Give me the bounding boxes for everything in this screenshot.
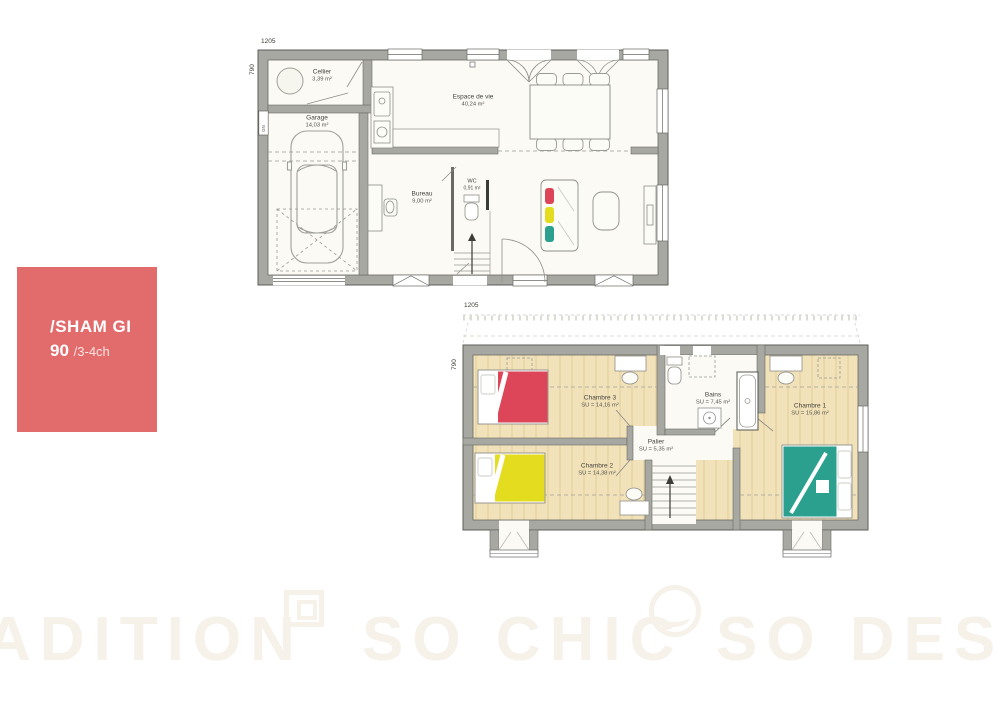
circle-logo-icon [649,585,701,637]
model-number: 90 [50,341,69,360]
room-label-bureau: Bureau 9,00 m² [412,190,433,205]
shower [737,372,758,430]
room-label-garage: Garage 14,03 m² [306,114,329,129]
square-logo-icon [284,590,324,627]
model-variant: /3-4ch [74,344,110,359]
upper-height-dimension: 790 [451,359,458,370]
washbasin [698,408,721,428]
room-label-chambre2: Chambre 2 SU = 14,38 m² [578,462,616,477]
sofa [541,180,578,251]
model-title: /SHAM GI [50,317,131,337]
ground-width-dimension: 1205 [261,38,275,45]
circle-logo-inner [658,606,690,627]
watermark-text-center: SO CHIC [362,604,683,675]
roof-outline [463,315,860,343]
bed-yellow [475,453,545,503]
upper-width-dimension: 1205 [464,302,478,309]
ground-floor-plan: 1205 790 GN Cellier 3,39 m² Garage 14,03… [245,35,675,291]
room-label-palier: Palier SU = 5,35 m² [639,438,673,453]
room-label-chambre1: Chambre 1 SU = 15,86 m² [791,402,829,417]
bed-red [478,370,548,424]
dining-table [530,74,610,151]
model-number-line: 90 /3-4ch [50,341,110,361]
toilet [667,357,682,384]
toilet [464,195,479,220]
room-label-wc: WC 0,91 m² [464,178,481,191]
coffee-table [593,192,619,230]
watermark-text-right: SO DESI [716,604,1000,675]
upper-floor-drawing [446,298,874,570]
room-label-cellier: Cellier 3,39 m² [312,68,332,83]
ground-floor-drawing [245,35,675,291]
plan-sheet: ADITION SO CHIC SO DESI /SHAM GI 90 /3-4… [0,0,1000,706]
water-heater [277,68,303,94]
tv-unit [644,186,656,244]
upper-floor-plan: 1205 790 Chambre 3 SU = 14,16 m² Bains S… [446,298,874,570]
square-logo-inner [297,600,317,620]
room-label-bains: Bains SU = 7,45 m² [696,391,730,406]
model-brand-card: /SHAM GI 90 /3-4ch [17,267,157,432]
bed-teal [782,445,852,518]
wall-duct-tag: GN [261,125,266,132]
room-label-espace-de-vie: Espace de vie 40,24 m² [453,93,494,108]
room-label-chambre3: Chambre 3 SU = 14,16 m² [581,394,619,409]
watermark-text-left: ADITION [0,604,304,675]
ground-height-dimension: 790 [249,64,256,75]
